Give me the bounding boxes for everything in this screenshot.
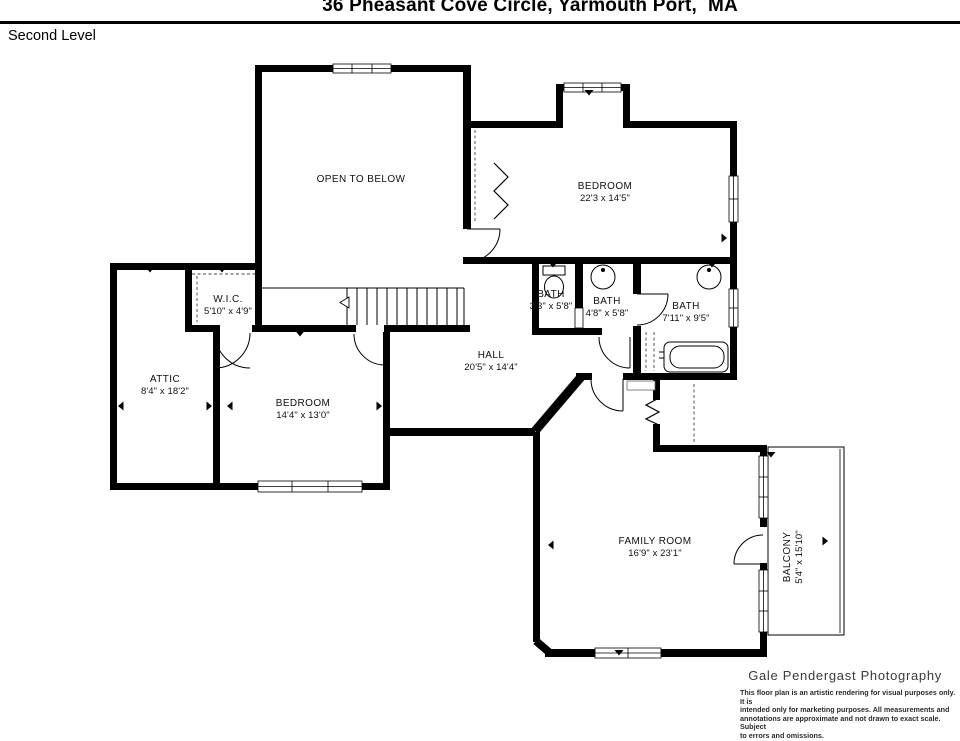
room-label-bedroom-second: BEDROOM 14'4" x 13'0"	[276, 398, 330, 422]
diagonal-walls	[535, 377, 581, 653]
sink-icon	[591, 265, 615, 289]
room-name: W.I.C.	[204, 294, 252, 306]
room-dims: 5'4" x 15'10"	[794, 530, 806, 583]
room-name: ATTIC	[141, 374, 189, 386]
balcony-deck	[768, 447, 844, 635]
room-dims: 16'9" x 23'1"	[619, 548, 692, 560]
room-name: FAMILY ROOM	[619, 536, 692, 548]
room-dims: 14'4" x 13'0"	[276, 410, 330, 422]
room-name: BATH	[662, 301, 709, 313]
shelf-icon	[627, 381, 655, 390]
room-name: BEDROOM	[578, 181, 632, 193]
disclaimer: This floor plan is an artistic rendering…	[740, 689, 956, 741]
room-dims: 4'8" x 5'8"	[586, 308, 629, 320]
room-name: HALL	[464, 350, 517, 362]
disclaimer-line-1: This floor plan is an artistic rendering…	[740, 689, 956, 706]
room-label-bath-small: BATH 3'3" x 5'8"	[530, 289, 573, 313]
room-label-hall: HALL 20'5" x 14'4"	[464, 350, 517, 374]
stair-direction-arrow	[340, 297, 349, 308]
room-name: BATH	[586, 296, 629, 308]
stairs	[262, 288, 464, 325]
room-label-bath-large: BATH 7'11" x 9'5"	[662, 301, 709, 325]
room-dims: 22'3 x 14'5"	[578, 193, 632, 205]
room-dims: 8'4" x 18'2"	[141, 386, 189, 398]
room-name: BALCONY	[782, 530, 794, 583]
disclaimer-line-4: to errors and omissions.	[740, 732, 956, 741]
room-name: OPEN TO BELOW	[317, 174, 406, 186]
room-dims: 20'5" x 14'4"	[464, 362, 517, 374]
room-label-family-room: FAMILY ROOM 16'9" x 23'1"	[619, 536, 692, 560]
room-label-bedroom-primary: BEDROOM 22'3 x 14'5"	[578, 181, 632, 205]
room-dims: 5'10" x 4'9"	[204, 306, 252, 318]
room-dims: 7'11" x 9'5"	[662, 313, 709, 325]
room-name: BEDROOM	[276, 398, 330, 410]
room-label-open-to-below: OPEN TO BELOW	[317, 174, 406, 186]
bathtub-icon	[659, 342, 728, 372]
room-label-wic: W.I.C. 5'10" x 4'9"	[204, 294, 252, 318]
sink-icon-2	[697, 265, 721, 289]
door-arcs	[215, 229, 763, 564]
room-label-balcony: BALCONY 5'4" x 15'10"	[782, 530, 806, 583]
door-jamb	[575, 308, 583, 328]
photography-credit: Gale Pendergast Photography	[748, 668, 942, 683]
room-label-attic: ATTIC 8'4" x 18'2"	[141, 374, 189, 398]
room-label-bath-mid: BATH 4'8" x 5'8"	[586, 296, 629, 320]
room-name: BATH	[530, 289, 573, 301]
room-dims: 3'3" x 5'8"	[530, 301, 573, 313]
disclaimer-line-3: annotations are approximate and not draw…	[740, 715, 956, 732]
closet-dashes	[192, 130, 694, 443]
